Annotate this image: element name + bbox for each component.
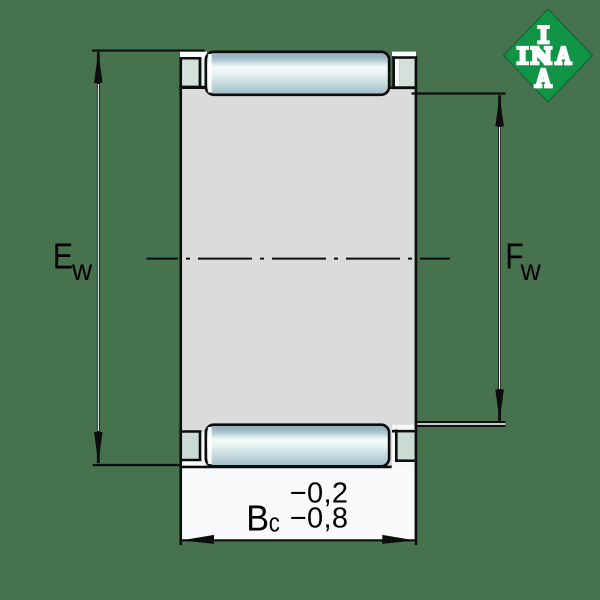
svg-text:B: B	[246, 499, 269, 539]
svg-text:c: c	[269, 509, 280, 538]
svg-text:E: E	[53, 237, 73, 277]
svg-text:−0,8: −0,8	[290, 503, 348, 535]
svg-text:w: w	[520, 254, 541, 287]
svg-text:w: w	[71, 254, 92, 287]
